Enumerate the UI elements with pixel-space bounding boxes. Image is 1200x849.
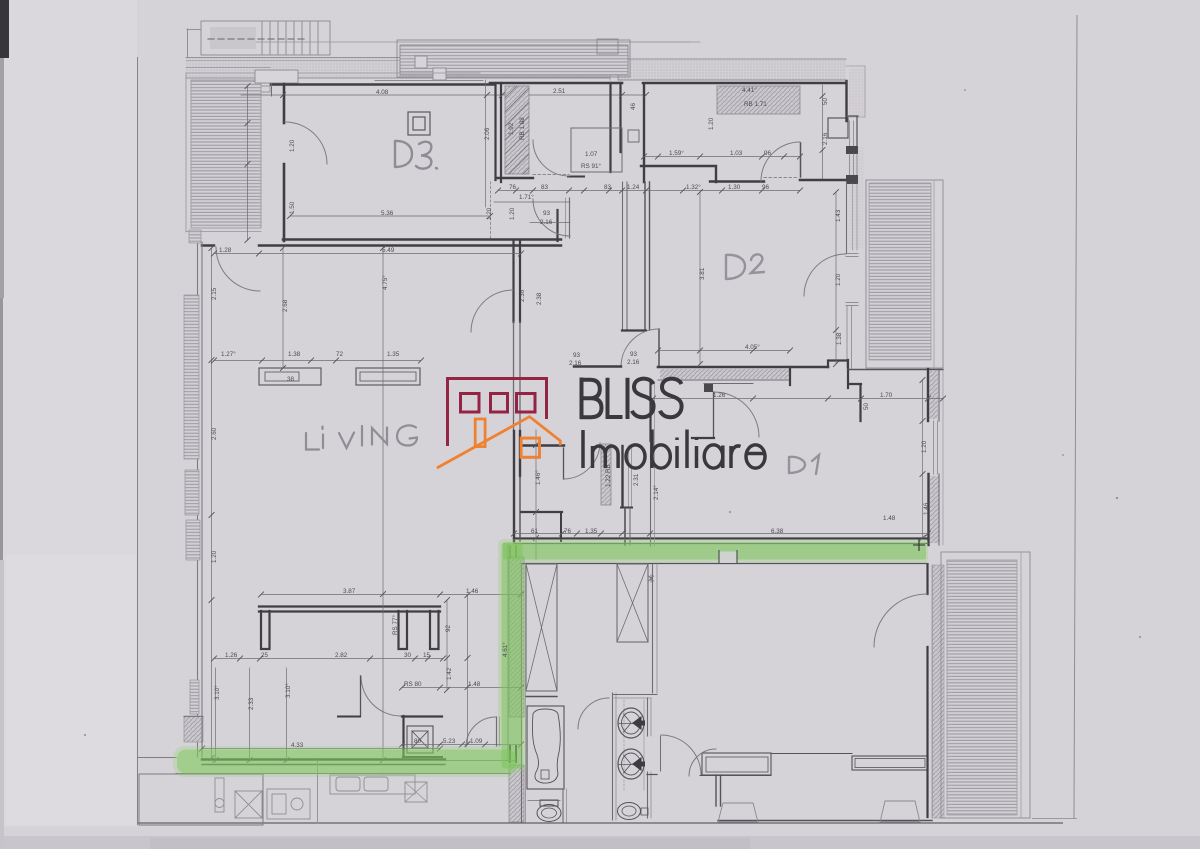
svg-text:93: 93: [543, 210, 551, 217]
svg-text:46: 46: [630, 102, 637, 110]
svg-text:5.36: 5.36: [381, 210, 394, 217]
svg-text:2.06: 2.06: [484, 127, 491, 140]
svg-text:76: 76: [564, 528, 572, 535]
svg-text:2.16: 2.16: [627, 359, 640, 366]
svg-text:61: 61: [531, 528, 539, 535]
svg-text:80: 80: [414, 738, 422, 745]
svg-text:2.36: 2.36: [519, 289, 526, 302]
svg-text:83: 83: [541, 184, 549, 191]
svg-text:1.20: 1.20: [289, 139, 296, 152]
svg-text:38: 38: [287, 376, 295, 383]
svg-text:5.23: 5.23: [443, 738, 456, 745]
svg-text:RS 80: RS 80: [404, 681, 422, 688]
svg-text:3.87: 3.87: [343, 588, 356, 595]
svg-text:1.71°: 1.71°: [519, 193, 534, 201]
svg-text:1.48: 1.48: [468, 681, 481, 688]
svg-text:3.81: 3.81: [699, 267, 706, 280]
svg-text:1.38: 1.38: [288, 351, 301, 358]
svg-text:1.20: 1.20: [921, 440, 928, 453]
svg-text:3.10°: 3.10°: [213, 685, 221, 700]
svg-text:1.92: 1.92: [508, 122, 515, 135]
svg-text:RS 91°: RS 91°: [581, 162, 602, 170]
svg-text:50: 50: [822, 97, 829, 105]
svg-text:1.27°: 1.27°: [221, 350, 236, 358]
svg-text:1.28: 1.28: [219, 247, 232, 254]
svg-text:2.60: 2.60: [211, 427, 218, 440]
svg-text:6.38: 6.38: [771, 528, 784, 535]
svg-text:1.03: 1.03: [730, 150, 743, 157]
svg-text:30: 30: [404, 652, 412, 659]
svg-text:1.09: 1.09: [470, 738, 483, 745]
svg-text:5.49: 5.49: [382, 247, 395, 254]
svg-text:2.15: 2.15: [211, 287, 218, 300]
svg-text:1.38: 1.38: [836, 332, 843, 345]
svg-text:4.05°: 4.05°: [745, 343, 760, 351]
svg-text:2.16: 2.16: [822, 132, 829, 145]
svg-text:1.32°: 1.32°: [686, 183, 701, 191]
svg-text:4.08: 4.08: [376, 89, 389, 96]
svg-text:1.22 RB: 1.22 RB: [605, 464, 612, 487]
svg-text:1.46: 1.46: [466, 588, 479, 595]
svg-text:2.14°: 2.14°: [652, 485, 660, 500]
svg-text:2.82: 2.82: [335, 652, 348, 659]
svg-text:92: 92: [445, 624, 452, 632]
svg-text:1.20: 1.20: [708, 117, 715, 130]
svg-text:4.75°: 4.75°: [381, 275, 389, 290]
svg-text:RS 77°: RS 77°: [391, 614, 399, 635]
svg-text:1.35: 1.35: [585, 528, 598, 535]
svg-text:1.26: 1.26: [225, 652, 238, 659]
svg-text:1.20: 1.20: [509, 207, 516, 220]
svg-text:3.10°: 3.10°: [284, 683, 292, 698]
svg-text:1.20: 1.20: [486, 207, 493, 220]
svg-text:1.20: 1.20: [835, 273, 842, 286]
svg-text:50: 50: [863, 402, 870, 410]
svg-text:15: 15: [423, 652, 431, 659]
svg-text:1.43: 1.43: [835, 209, 842, 222]
svg-text:96: 96: [762, 184, 770, 191]
svg-text:83: 83: [604, 184, 612, 191]
svg-text:25: 25: [261, 652, 269, 659]
svg-text:2.38: 2.38: [536, 292, 543, 305]
svg-text:1.50: 1.50: [289, 201, 296, 214]
svg-text:1.59°: 1.59°: [669, 149, 684, 157]
svg-text:RB 1.88: RB 1.88: [519, 117, 526, 140]
svg-text:93: 93: [573, 352, 581, 359]
svg-text:1.46: 1.46: [923, 502, 930, 515]
svg-text:1.70: 1.70: [880, 392, 893, 399]
svg-text:2.16: 2.16: [569, 360, 582, 367]
svg-text:4.41°: 4.41°: [742, 86, 757, 94]
svg-text:1.35: 1.35: [387, 351, 400, 358]
svg-text:1.20: 1.20: [211, 550, 218, 563]
svg-text:1.46°: 1.46°: [534, 470, 542, 485]
svg-text:72: 72: [336, 351, 344, 358]
svg-text:1.07: 1.07: [585, 151, 598, 158]
svg-text:76: 76: [509, 184, 517, 191]
svg-text:4.61°: 4.61°: [501, 642, 509, 657]
svg-text:2.51: 2.51: [553, 88, 566, 95]
svg-text:1.30: 1.30: [728, 184, 741, 191]
svg-text:1.48: 1.48: [883, 515, 896, 522]
svg-text:2.16: 2.16: [540, 219, 553, 226]
svg-text:1.26: 1.26: [713, 392, 726, 399]
svg-text:1.42: 1.42: [446, 667, 453, 680]
svg-text:96: 96: [764, 150, 772, 157]
svg-text:93: 93: [630, 351, 638, 358]
svg-text:1.24: 1.24: [627, 184, 640, 191]
svg-text:4.33: 4.33: [291, 742, 304, 749]
svg-text:2.68: 2.68: [282, 299, 289, 312]
svg-text:2.33: 2.33: [248, 697, 255, 710]
svg-text:2.31: 2.31: [633, 473, 640, 486]
svg-text:RB 1.71: RB 1.71: [744, 101, 767, 108]
